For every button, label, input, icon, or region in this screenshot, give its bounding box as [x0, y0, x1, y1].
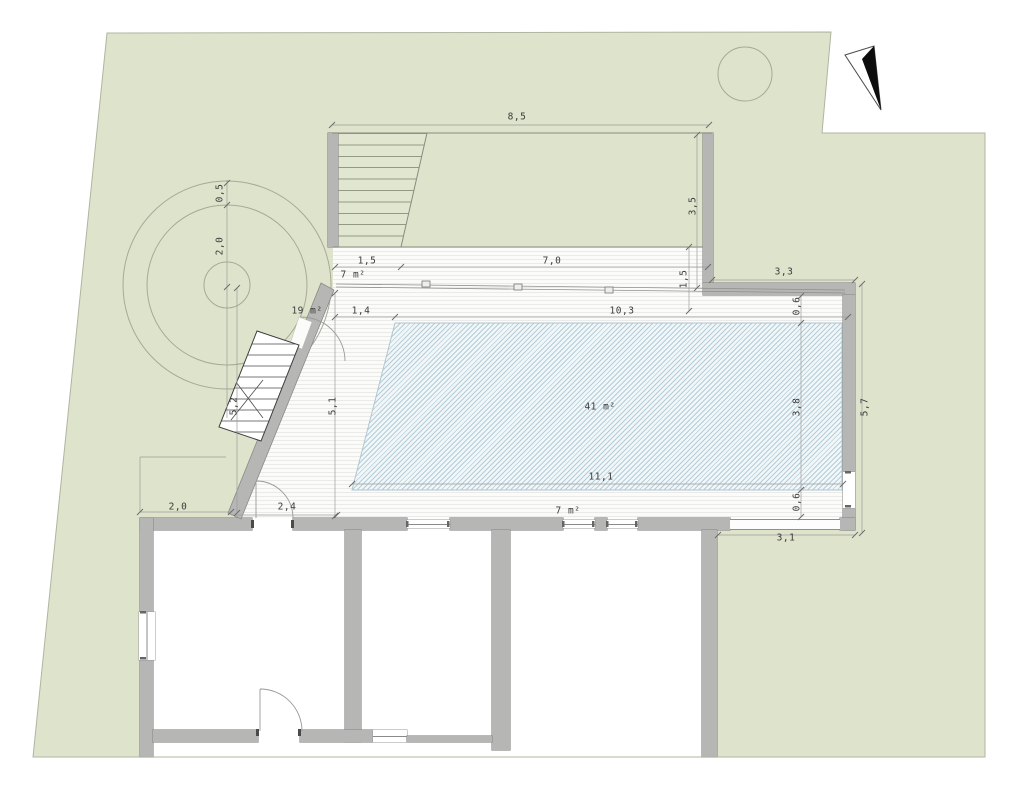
dim-margin-bottom: 0,6 [792, 493, 802, 512]
window-house-left [139, 612, 155, 660]
pool-area: 41 m² [584, 402, 615, 412]
window-terrace-2 [563, 520, 595, 528]
wall-bottom-4 [638, 518, 730, 530]
dim-pool-bottom: 11,1 [589, 472, 614, 482]
dim-top-width: 8,5 [508, 112, 527, 122]
dim-deck-depth: 1,5 [679, 270, 689, 289]
wall-wing-top [703, 283, 855, 295]
dim-right-stair: 3,5 [688, 197, 698, 216]
dim-pool-top: 10,3 [610, 306, 635, 316]
dim-deck-step: 1,5 [358, 256, 377, 266]
dim-terrace-left: 5,2 [229, 397, 239, 416]
wall-bottom-corner [840, 518, 855, 530]
dim-deck-width: 7,0 [543, 256, 562, 266]
gate-right-wall [843, 472, 855, 508]
dim-left-setback: 2,0 [169, 502, 188, 512]
terrace-area: 19 m² [291, 306, 322, 316]
dim-pool-inset: 1,4 [352, 306, 371, 316]
window-terrace-3 [607, 520, 638, 528]
dim-tree-ring: 0,5 [215, 184, 225, 203]
dim-margin-top: 0,6 [792, 297, 802, 316]
floor-plan-canvas: 8,5 3,5 1,5 7,0 7 m² 1,5 3,3 19 m² 1,4 1… [0, 0, 1024, 790]
upper-deck [333, 247, 703, 290]
upper-deck-area: 7 m² [341, 270, 366, 280]
wall-interior-2 [492, 530, 510, 750]
wall-interior-3 [702, 530, 717, 757]
wall-bottom-pier [595, 518, 607, 530]
dim-terrace-door: 2,4 [278, 502, 297, 512]
dim-wing-top: 3,3 [775, 267, 794, 277]
glazed-door-bottom-right [730, 519, 840, 530]
window-interior [373, 730, 407, 742]
dim-right-side: 5,7 [860, 398, 870, 417]
wall-bottom-2 [293, 518, 407, 530]
dim-pool-depth: 3,8 [792, 398, 802, 417]
wall-stair-right [703, 133, 713, 283]
north-arrow-icon [845, 46, 881, 110]
dim-wing-bottom: 3,1 [777, 533, 796, 543]
wall-bottom-3 [450, 518, 563, 530]
wall-interior-h2 [300, 730, 373, 742]
window-terrace-1 [407, 520, 450, 528]
wall-interior-h1 [153, 730, 258, 742]
dim-terrace-inner: 5,1 [328, 397, 338, 416]
wall-bottom-1 [140, 518, 252, 530]
wall-interior-h3 [407, 736, 492, 742]
dim-tree-radius: 2,0 [215, 237, 225, 256]
wall-stair-left [328, 133, 338, 247]
house-interior [140, 530, 717, 757]
wall-interior-1 [345, 530, 361, 742]
lower-deck-area: 7 m² [556, 506, 581, 516]
